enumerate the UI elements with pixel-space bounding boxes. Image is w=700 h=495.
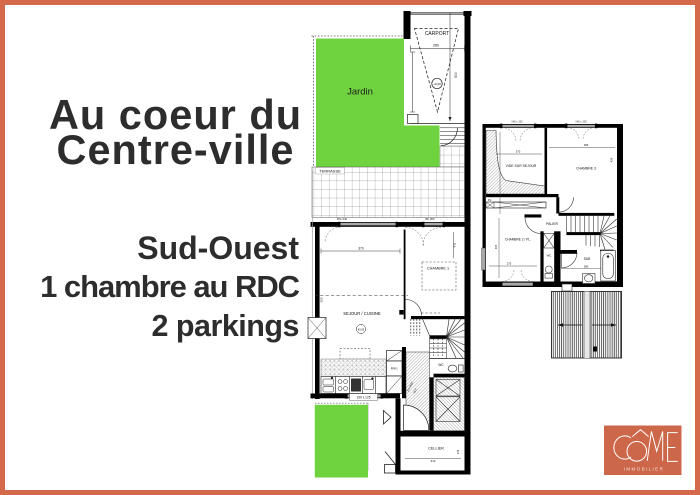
svg-text:140 x 120: 140 x 120 (511, 120, 523, 124)
svg-text:WC: WC (547, 254, 552, 258)
svg-text:VIDE SUR SEJOUR: VIDE SUR SEJOUR (506, 164, 537, 168)
svg-text:CHAMBRE 1: CHAMBRE 1 (427, 267, 449, 271)
svg-text:Jardin: Jardin (347, 87, 373, 98)
svg-text:SEJOUR / CUISINE: SEJOUR / CUISINE (343, 311, 381, 316)
svg-text:370: 370 (358, 247, 364, 251)
svg-text:IMMOBILIER: IMMOBILIER (624, 467, 665, 472)
svg-text:BF 060: BF 060 (425, 217, 434, 221)
svg-text:CELLIER: CELLIER (428, 447, 444, 451)
svg-text:SDB: SDB (584, 257, 591, 261)
svg-text:313: 313 (431, 459, 436, 463)
svg-text:145: 145 (456, 449, 460, 454)
svg-text:280: 280 (584, 264, 589, 268)
svg-text:PL.: PL. (488, 198, 492, 202)
svg-text:190 x 125: 190 x 125 (356, 396, 370, 400)
svg-text:40,05: 40,05 (358, 327, 365, 331)
svg-text:420: 420 (610, 157, 614, 162)
svg-text:CHAMBRE 3: CHAMBRE 3 (576, 167, 596, 171)
svg-text:+0,00: +0,00 (433, 82, 441, 86)
svg-text:260: 260 (433, 44, 439, 48)
svg-text:275: 275 (507, 262, 512, 266)
svg-text:CARPORT: CARPORT (425, 31, 449, 37)
svg-text:500: 500 (454, 72, 458, 78)
svg-text:PFL 040: PFL 040 (337, 217, 348, 221)
svg-text:PALIER: PALIER (546, 222, 558, 226)
svg-text:250: 250 (320, 297, 324, 302)
svg-text:370: 370 (516, 150, 521, 154)
svg-text:286: 286 (584, 143, 589, 147)
svg-text:411: 411 (453, 242, 457, 247)
svg-text:WC: WC (438, 363, 444, 367)
svg-text:FRIG.: FRIG. (391, 367, 399, 371)
svg-text:405: 405 (494, 244, 498, 249)
svg-text:TERRASSE: TERRASSE (319, 169, 341, 174)
svg-text:CHAMBRE 2 / PL.: CHAMBRE 2 / PL. (505, 238, 531, 242)
svg-text:140 x 120: 140 x 120 (575, 120, 587, 124)
